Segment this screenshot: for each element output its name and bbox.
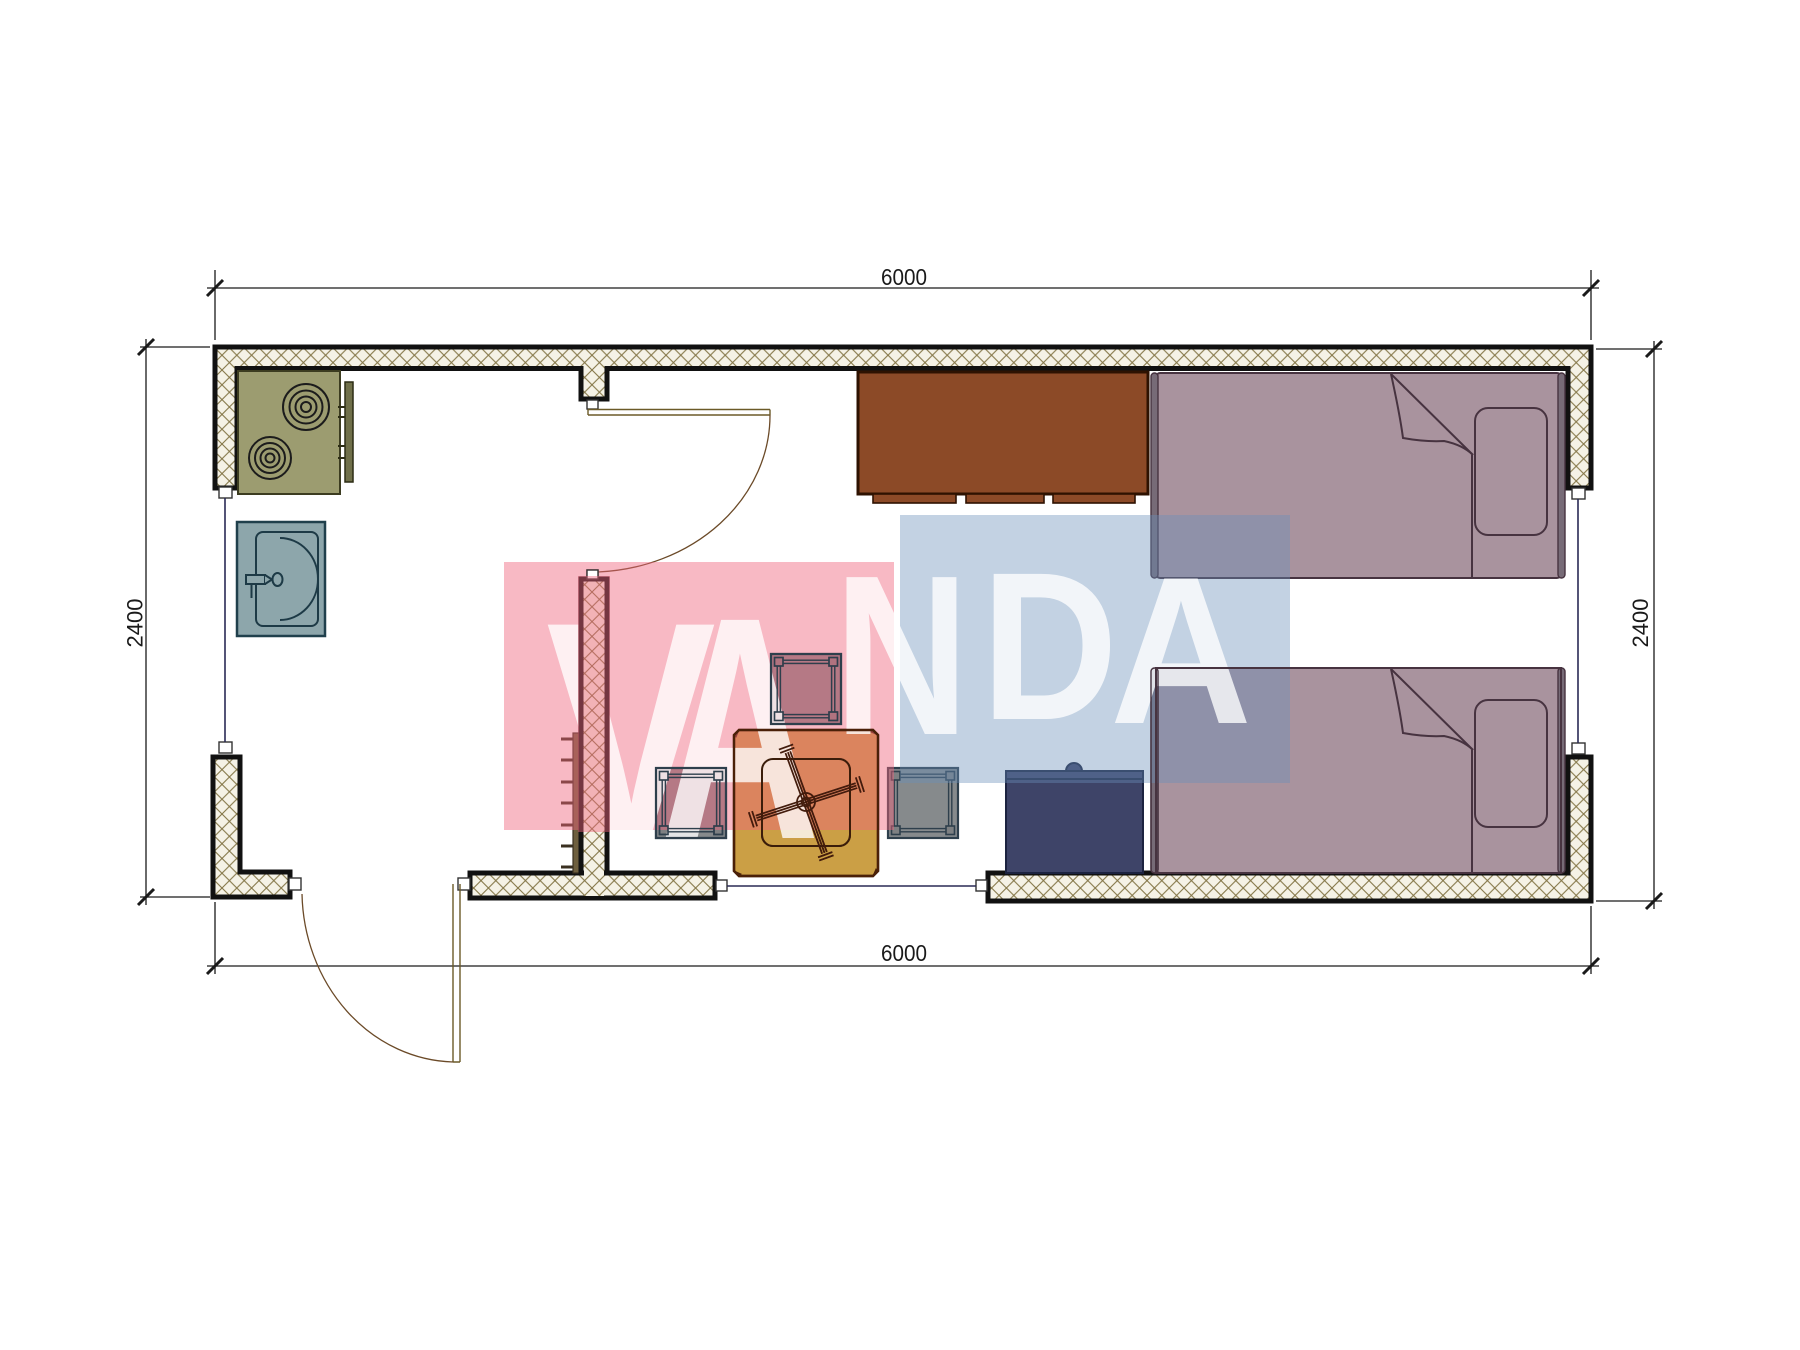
svg-text:6000: 6000 (881, 264, 927, 290)
svg-text:N: N (834, 529, 969, 783)
svg-text:D: D (981, 528, 1118, 764)
svg-text:2400: 2400 (123, 599, 148, 648)
svg-text:6000: 6000 (881, 940, 927, 966)
svg-text:2400: 2400 (1628, 599, 1653, 648)
svg-text:A: A (1110, 533, 1252, 768)
